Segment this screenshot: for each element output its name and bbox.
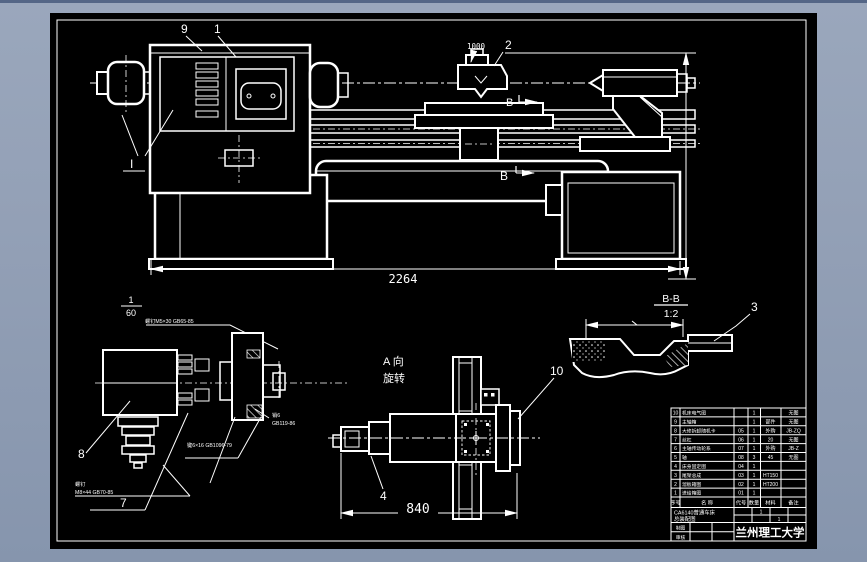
part-code: 08 <box>738 455 744 461</box>
balloon-10: 10 <box>550 364 564 378</box>
a-view-caption-1: A 向 <box>383 354 404 368</box>
part-remark: 无图 <box>788 437 798 443</box>
part-qty: 1 <box>753 482 756 488</box>
part-seq: 10 <box>673 411 679 417</box>
header-material: 材料 <box>765 499 775 507</box>
sig-label-2: 审核 <box>676 534 686 541</box>
part-code: 02 <box>738 482 744 488</box>
part-code: 03 <box>738 473 744 479</box>
app-window: { "colors": { "window_background": "#93a… <box>0 0 867 562</box>
part-remark: JB-ZQ <box>786 428 801 434</box>
part-material: HT150 <box>763 473 778 479</box>
part-seq: 6 <box>674 446 677 452</box>
annotation-pin-1: 销6 <box>272 411 280 419</box>
header-qty: 数量 <box>749 499 759 507</box>
part-name: 溜板箱图 <box>682 481 701 488</box>
part-name: 进给箱图 <box>682 490 701 497</box>
part-remark: JB-Z <box>788 446 799 452</box>
detail-view: 1 60 螺钉M5×30 GB65-85 <box>75 295 348 510</box>
part-material: 外购 <box>765 445 775 452</box>
main-lathe-view: 2264 9 1 I 2 1000 B B <box>90 22 702 286</box>
part-remark: 无图 <box>788 420 798 426</box>
dim-1000: 1000 <box>467 42 486 51</box>
part-qty: 1 <box>753 411 756 417</box>
part-seq: 5 <box>674 455 677 461</box>
svg-text:1: 1 <box>128 295 133 305</box>
right-leg <box>546 172 686 269</box>
part-qty: 1 <box>753 420 756 426</box>
window-top-edge <box>0 0 867 3</box>
parts-list: 10机床电气图1无图 9主轴箱1部件无图 8大修拆卸随机卡051外购JB-ZQ … <box>673 410 801 497</box>
balloon-4: 4 <box>380 489 387 503</box>
balloon-7: 7 <box>120 496 127 510</box>
part-seq: 1 <box>674 491 677 497</box>
balloon-3: 3 <box>751 300 758 314</box>
part-qty: 1 <box>753 473 756 479</box>
header-seq: 序号 <box>670 499 680 507</box>
svg-text:B: B <box>506 97 513 109</box>
drawing-title-line1: CA6140普通车床 <box>674 509 716 517</box>
annotation-screw-1: 螺钉 <box>75 480 85 488</box>
part-code: 01 <box>738 491 744 497</box>
svg-text:60: 60 <box>126 308 136 318</box>
faceplate <box>310 63 348 107</box>
part-code: 05 <box>738 428 744 434</box>
part-name: 床身固定图 <box>682 463 706 470</box>
bb-scale: 1:2 <box>664 308 679 320</box>
bed-section-profile <box>570 335 732 377</box>
part-material: 外购 <box>765 427 775 434</box>
part-name: 丝杠 <box>682 436 692 443</box>
bb-dimension <box>586 319 683 341</box>
drawing-canvas[interactable]: 2264 9 1 I 2 1000 B B 1 60 螺钉M5 <box>50 13 817 549</box>
drawing-title-line2: 总装配图 <box>674 515 696 523</box>
annotation-pin-2: GB119-86 <box>272 421 295 427</box>
headstock <box>150 45 310 193</box>
school-name: 兰州理工大学 <box>736 526 805 540</box>
chuck <box>97 55 150 112</box>
scale-fraction: 1 60 <box>121 295 142 318</box>
part-remark: 无图 <box>788 455 798 461</box>
part-seq: 4 <box>674 464 677 470</box>
part-name: 机床电气图 <box>682 410 706 417</box>
a-rotated-view: A 向 旋转 <box>328 354 564 519</box>
part-qty: 1 <box>753 491 756 497</box>
balloon-9: 9 <box>181 22 188 36</box>
sig-label-1: 制图 <box>676 525 686 532</box>
end-housing <box>232 333 285 420</box>
annotation-screw-2: M8×44 GB70-85 <box>75 490 113 496</box>
cad-drawing: 2264 9 1 I 2 1000 B B 1 60 螺钉M5 <box>50 13 817 549</box>
bb-caption: B-B <box>662 293 680 305</box>
part-qty: 1 <box>753 464 756 470</box>
dim-840: 840 <box>406 502 429 517</box>
part-material: 45 <box>768 455 774 461</box>
header-name: 名 称 <box>701 499 713 507</box>
header-code: 代号 <box>736 499 746 507</box>
part-seq: 9 <box>674 420 677 426</box>
part-name: 主轴传动轮系 <box>682 445 711 452</box>
balloon-2: 2 <box>505 38 512 52</box>
annotation-top: 螺钉M5×30 GB65-85 <box>145 317 194 325</box>
label-I: I <box>130 157 133 171</box>
part-name: 轴 <box>682 454 687 461</box>
part-name: 主轴箱 <box>682 419 697 426</box>
part-material: HT200 <box>763 482 778 488</box>
title-block: 10机床电气图1无图 9主轴箱1部件无图 8大修拆卸随机卡051外购JB-ZQ … <box>670 408 806 541</box>
header-remark: 备注 <box>788 499 798 507</box>
balloon-1: 1 <box>214 22 221 36</box>
part-code: 06 <box>738 437 744 443</box>
part-qty: 1 <box>753 446 756 452</box>
part-code: 04 <box>738 464 744 470</box>
part-seq: 8 <box>674 428 677 434</box>
part-name: 尾架总成 <box>682 472 701 479</box>
part-name: 大修拆卸随机卡 <box>682 427 716 434</box>
gear-shaft-cluster <box>178 355 232 405</box>
meta-mark-2: 1 <box>778 517 781 523</box>
bb-section-view: B-B 1:2 3 <box>570 293 758 377</box>
part-qty: 3 <box>753 455 756 461</box>
part-remark: 无图 <box>788 411 798 417</box>
balloon-8: 8 <box>78 447 85 461</box>
a-view-caption-2: 旋转 <box>383 371 405 385</box>
part-seq: 7 <box>674 437 677 443</box>
svg-text:B: B <box>500 169 508 183</box>
part-material: 20 <box>768 437 774 443</box>
stepped-stack <box>118 417 158 468</box>
part-seq: 2 <box>674 482 677 488</box>
part-material: 部件 <box>765 419 775 426</box>
part-code: 07 <box>738 446 744 452</box>
part-qty: 1 <box>753 428 756 434</box>
dim-2264: 2264 <box>389 272 418 286</box>
part-seq: 3 <box>674 473 677 479</box>
meta-mark-1: 1 <box>760 510 763 516</box>
part-qty: 1 <box>753 437 756 443</box>
